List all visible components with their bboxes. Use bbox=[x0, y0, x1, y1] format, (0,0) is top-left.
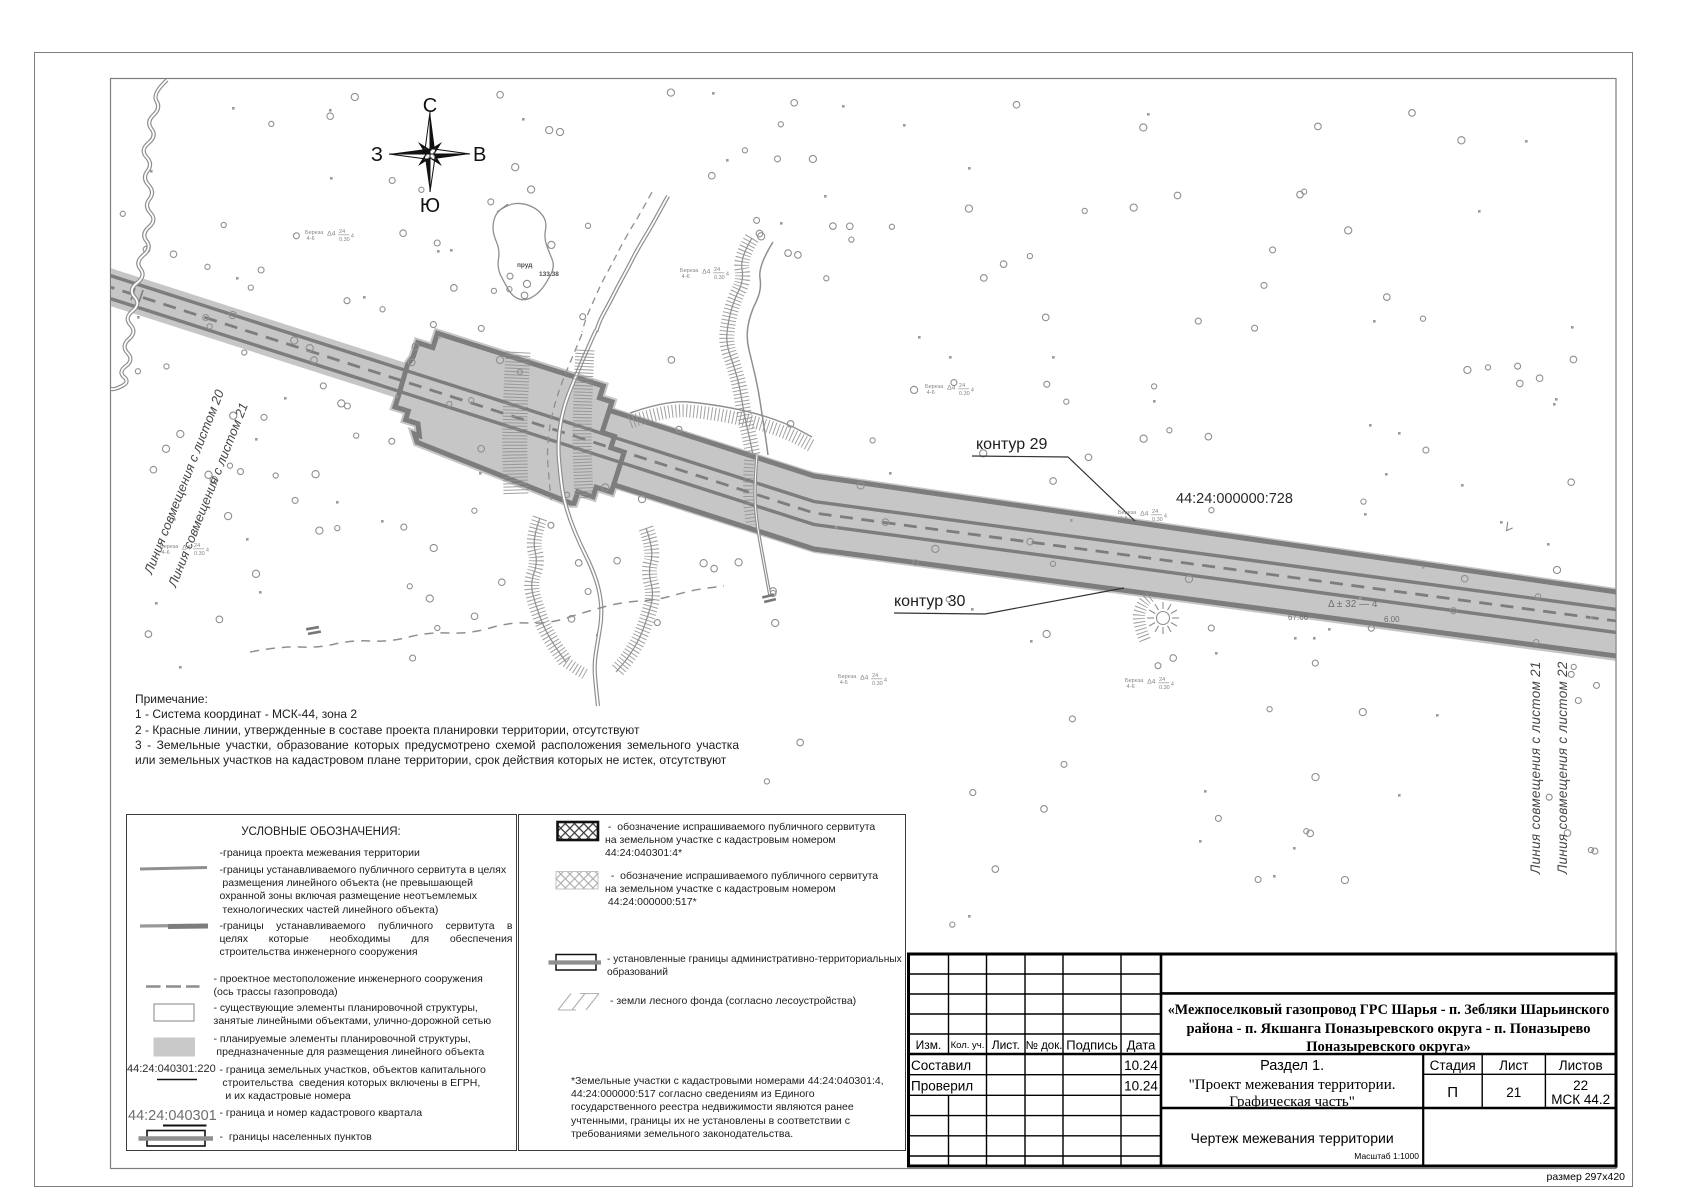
svg-text:133.38: 133.38 bbox=[539, 271, 559, 278]
svg-text:Лист.: Лист. bbox=[992, 1038, 1020, 1052]
svg-text:П: П bbox=[1447, 1084, 1458, 1101]
svg-text:Поназыревского округа»: Поназыревского округа» bbox=[1306, 1039, 1471, 1055]
svg-text:24: 24 bbox=[1159, 677, 1165, 683]
svg-text:4: 4 bbox=[884, 677, 887, 683]
svg-text:24: 24 bbox=[959, 383, 965, 389]
svg-text:Ю: Ю bbox=[420, 195, 440, 217]
svg-text:0.30: 0.30 bbox=[872, 681, 883, 687]
svg-text:Масштаб 1:1000: Масштаб 1:1000 bbox=[1354, 1151, 1419, 1161]
svg-text:МСК 44.2: МСК 44.2 bbox=[1551, 1092, 1610, 1107]
svg-text:44:24:000000:728: 44:24:000000:728 bbox=[1176, 491, 1293, 507]
svg-text:Δ4: Δ4 bbox=[182, 545, 191, 552]
svg-text:Листов: Листов bbox=[1559, 1058, 1603, 1073]
svg-text:10.24: 10.24 bbox=[1124, 1058, 1158, 1073]
svg-text:Береза: Береза bbox=[1118, 510, 1137, 516]
svg-text:0.30: 0.30 bbox=[959, 391, 970, 397]
svg-text:6.00: 6.00 bbox=[1384, 615, 1400, 624]
svg-text:Δ4: Δ4 bbox=[947, 385, 956, 392]
svg-text:Δ4: Δ4 bbox=[1147, 679, 1156, 686]
svg-text:Береза: Береза bbox=[925, 384, 944, 390]
svg-text:4-6: 4-6 bbox=[307, 236, 315, 242]
svg-text:Береза: Береза bbox=[680, 268, 699, 274]
svg-text:«Межпоселковый газопровод ГРС: «Межпоселковый газопровод ГРС Шарья - п.… bbox=[1168, 1002, 1610, 1018]
svg-text:4-6: 4-6 bbox=[682, 274, 690, 280]
svg-text:Береза: Береза bbox=[160, 544, 179, 550]
svg-text:0.30: 0.30 bbox=[1159, 685, 1170, 691]
svg-text:пруд: пруд bbox=[517, 262, 532, 269]
svg-text:0.30: 0.30 bbox=[714, 275, 725, 281]
svg-text:№ док.: № док. bbox=[1026, 1040, 1063, 1052]
svg-text:Изм.: Изм. bbox=[916, 1038, 942, 1052]
svg-text:Береза: Береза bbox=[1125, 678, 1144, 684]
svg-text:Стадия: Стадия bbox=[1430, 1058, 1476, 1073]
svg-text:21: 21 bbox=[1506, 1085, 1521, 1100]
svg-text:Проверил: Проверил bbox=[911, 1079, 973, 1094]
svg-text:4: 4 bbox=[351, 233, 354, 239]
svg-text:4-6: 4-6 bbox=[927, 390, 935, 396]
svg-text:∠: ∠ bbox=[1501, 520, 1515, 535]
svg-text:4: 4 bbox=[726, 271, 729, 277]
svg-text:Чертеж межевания территории: Чертеж межевания территории bbox=[1191, 1130, 1394, 1146]
svg-text:Δ4: Δ4 bbox=[702, 269, 711, 276]
svg-text:4-6: 4-6 bbox=[1127, 684, 1135, 690]
svg-text:Береза: Береза bbox=[838, 674, 857, 680]
svg-text:0.30: 0.30 bbox=[339, 237, 350, 243]
svg-text:4: 4 bbox=[206, 547, 209, 553]
svg-text:24: 24 bbox=[872, 673, 878, 679]
svg-text:Графическая часть": Графическая часть" bbox=[1229, 1094, 1355, 1110]
svg-text:размер 297х420: размер 297х420 bbox=[1547, 1171, 1626, 1183]
svg-text:Кол. уч.: Кол. уч. bbox=[951, 1040, 985, 1051]
svg-text:Δ4: Δ4 bbox=[1140, 511, 1149, 518]
svg-text:0.30: 0.30 bbox=[194, 551, 205, 557]
svg-text:Линия совмещения с листом: Линия совмещения с листом 22 bbox=[1555, 661, 1570, 875]
svg-text:10.24: 10.24 bbox=[1124, 1079, 1158, 1094]
svg-text:4-6: 4-6 bbox=[1120, 516, 1128, 522]
svg-text:4-6: 4-6 bbox=[840, 680, 848, 686]
svg-text:района - п. Якшанга Поназыревс: района - п. Якшанга Поназыревского округ… bbox=[1186, 1021, 1590, 1037]
svg-text:4: 4 bbox=[1171, 681, 1174, 687]
svg-text:24: 24 bbox=[194, 543, 200, 549]
svg-text:Δ4: Δ4 bbox=[860, 675, 869, 682]
svg-text:24: 24 bbox=[339, 229, 345, 235]
svg-text:67.66: 67.66 bbox=[1288, 613, 1309, 622]
svg-text:Береза: Береза bbox=[305, 230, 324, 236]
svg-text:Раздел 1.: Раздел 1. bbox=[1260, 1058, 1324, 1074]
svg-text:Дата: Дата bbox=[1127, 1038, 1157, 1053]
svg-text:С: С bbox=[423, 95, 437, 117]
svg-text:4-6: 4-6 bbox=[162, 550, 170, 556]
svg-text:24: 24 bbox=[714, 267, 720, 273]
svg-text:контур 29: контур 29 bbox=[976, 436, 1047, 453]
svg-text:22: 22 bbox=[1573, 1078, 1588, 1093]
svg-text:Δ ± 32 — 4: Δ ± 32 — 4 bbox=[1328, 599, 1378, 610]
svg-text:"Проект межевания территории.: "Проект межевания территории. bbox=[1189, 1077, 1396, 1093]
svg-text:В: В bbox=[473, 144, 486, 166]
svg-text:Δ4: Δ4 bbox=[327, 231, 336, 238]
svg-text:24: 24 bbox=[1152, 509, 1158, 515]
svg-text:4: 4 bbox=[1164, 513, 1167, 519]
svg-text:Линия совмещения с листом: Линия совмещения с листом 21 bbox=[1528, 661, 1543, 875]
svg-text:З: З bbox=[371, 144, 383, 166]
svg-text:контур 30: контур 30 bbox=[894, 593, 965, 610]
svg-text:0.30: 0.30 bbox=[1152, 517, 1163, 523]
svg-text:4: 4 bbox=[971, 387, 974, 393]
svg-text:Подпись: Подпись bbox=[1066, 1038, 1118, 1053]
svg-text:Составил: Составил bbox=[911, 1058, 971, 1073]
svg-text:Лист: Лист bbox=[1499, 1058, 1528, 1073]
